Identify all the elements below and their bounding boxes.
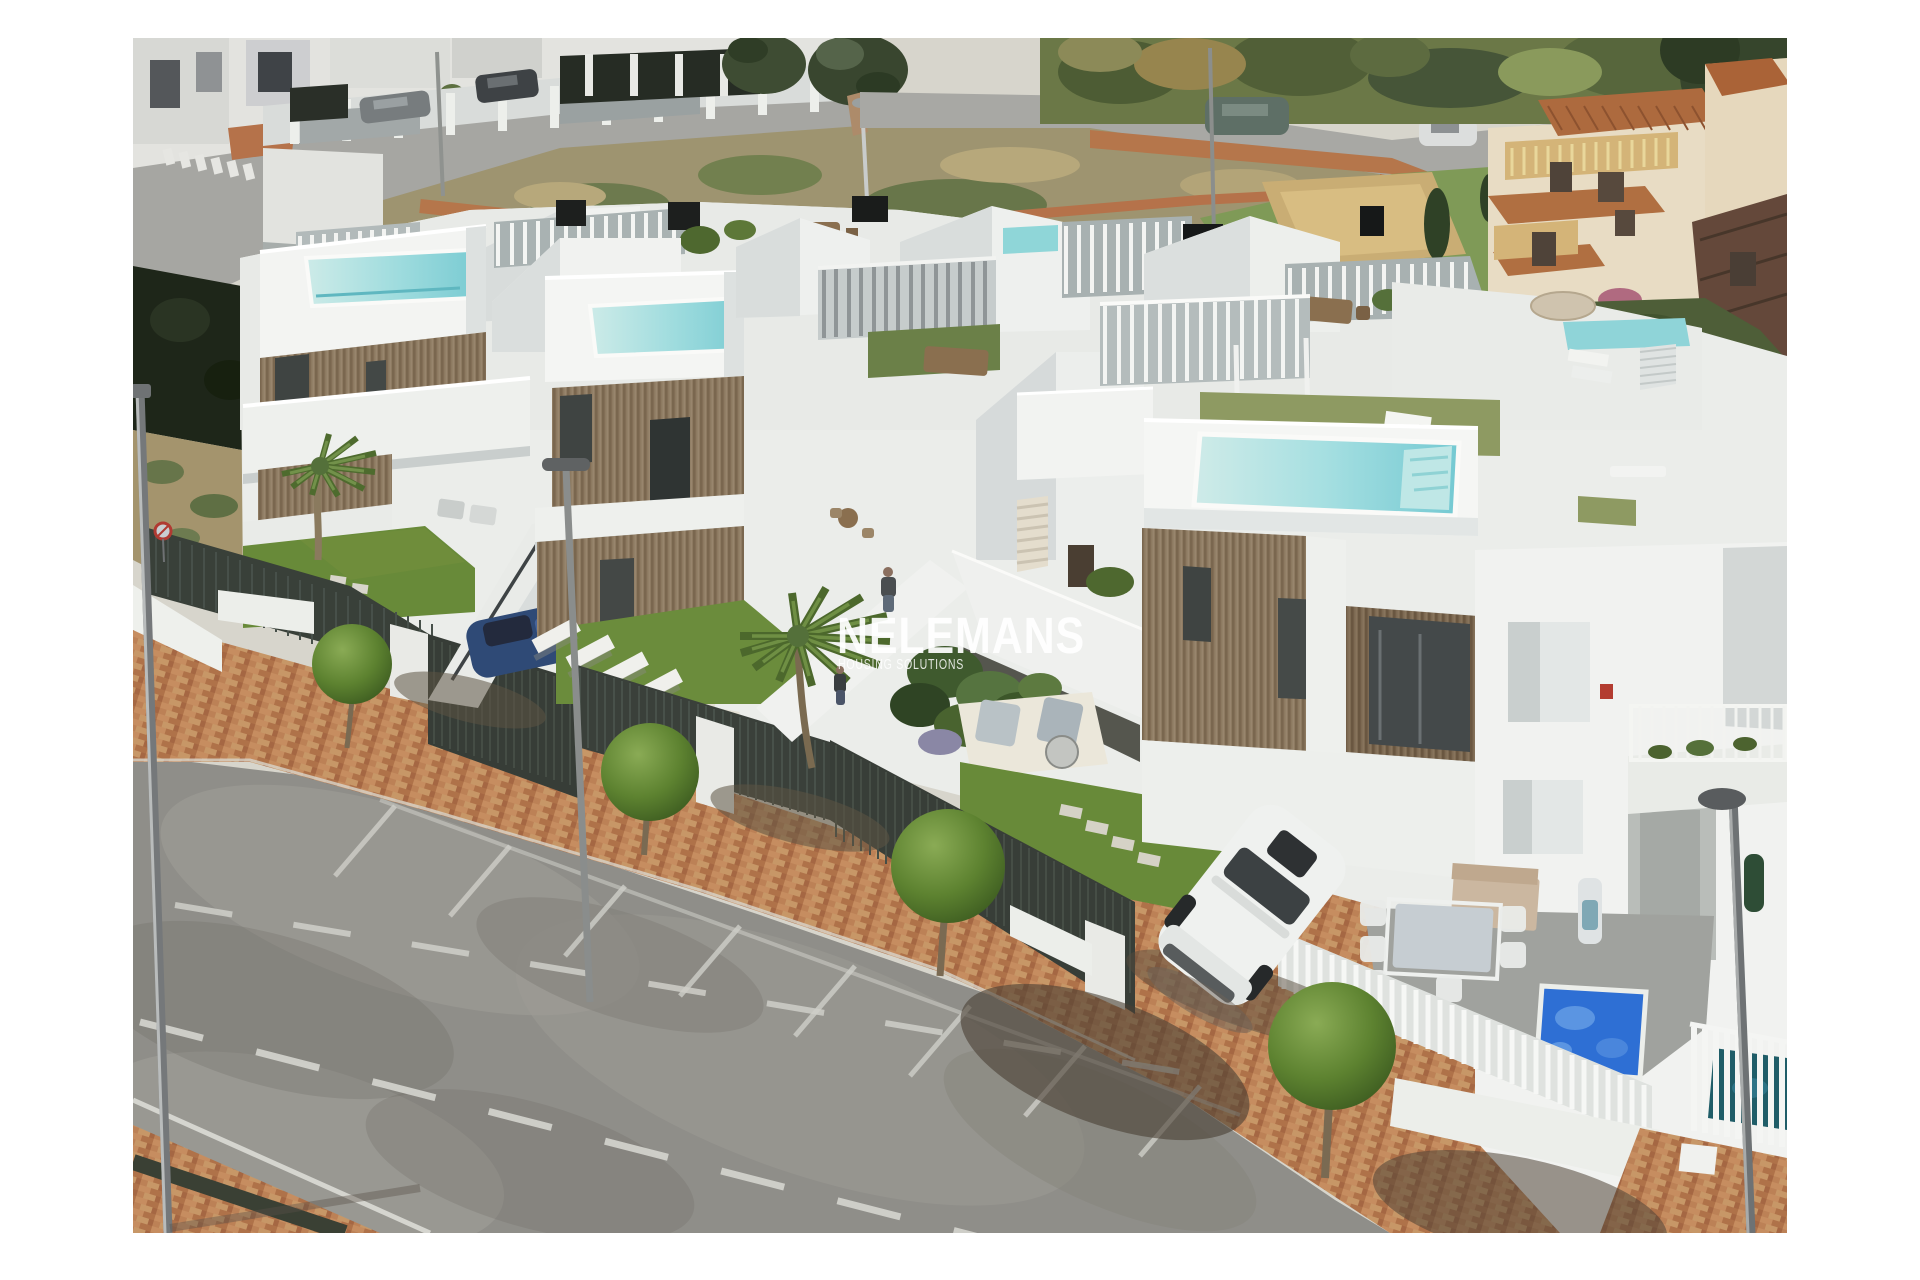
svg-text:NELEMANS: NELEMANS <box>837 607 1085 664</box>
svg-text:HOUSING SOLUTIONS: HOUSING SOLUTIONS <box>838 657 964 673</box>
